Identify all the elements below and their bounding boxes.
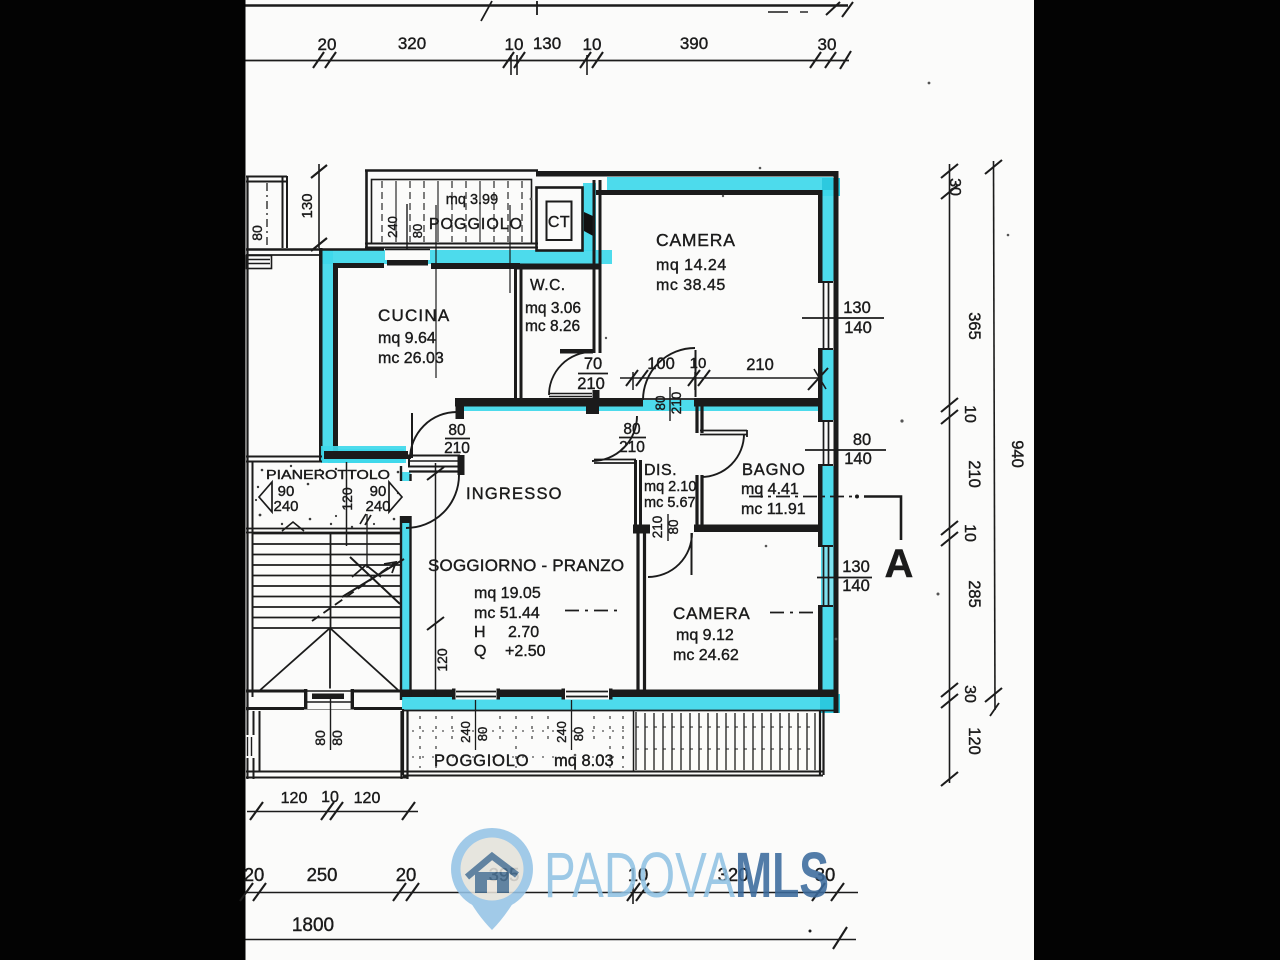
svg-text:DIS.: DIS. — [644, 462, 677, 479]
svg-text:120: 120 — [434, 648, 450, 672]
svg-text:mc 51.44: mc 51.44 — [474, 605, 540, 622]
svg-text:PADOVA: PADOVA — [544, 839, 735, 911]
svg-text:POGGIOLO: POGGIOLO — [434, 752, 529, 770]
svg-text:80: 80 — [410, 224, 425, 238]
svg-text:140: 140 — [844, 450, 872, 468]
svg-text:H: H — [474, 624, 486, 641]
svg-text:CUCINA: CUCINA — [378, 306, 450, 325]
svg-text:365: 365 — [965, 312, 983, 340]
svg-text:mc 11.91: mc 11.91 — [741, 501, 806, 518]
svg-text:130: 130 — [842, 558, 870, 576]
svg-text:CAMERA: CAMERA — [673, 604, 751, 623]
svg-text:mq 4.41: mq 4.41 — [741, 481, 799, 498]
svg-text:10: 10 — [690, 355, 707, 372]
svg-text:SOGGIORNO - PRANZO: SOGGIORNO - PRANZO — [428, 556, 624, 575]
svg-text:mq 2.10: mq 2.10 — [644, 479, 696, 495]
svg-text:80: 80 — [853, 431, 871, 449]
svg-text:CT: CT — [548, 214, 570, 231]
svg-text:MLS: MLS — [735, 839, 829, 911]
svg-text:100: 100 — [647, 355, 675, 373]
svg-text:210: 210 — [669, 392, 684, 415]
svg-text:20: 20 — [244, 864, 265, 885]
svg-text:mc 38.45: mc 38.45 — [656, 277, 726, 294]
svg-text:10: 10 — [961, 405, 978, 423]
svg-text:30: 30 — [818, 35, 837, 54]
svg-text:mq 3.99: mq 3.99 — [446, 192, 498, 208]
svg-text:80: 80 — [571, 727, 586, 741]
svg-text:140: 140 — [842, 577, 870, 595]
svg-text:20: 20 — [318, 35, 337, 54]
svg-text:10: 10 — [321, 789, 339, 806]
svg-text:A: A — [885, 542, 914, 586]
svg-text:30: 30 — [946, 178, 963, 196]
svg-text:mq 19.05: mq 19.05 — [474, 585, 541, 602]
svg-text:120: 120 — [281, 790, 308, 807]
svg-text:80: 80 — [623, 421, 641, 438]
svg-text:240: 240 — [365, 498, 390, 515]
svg-text:PIANEROTTOLO: PIANEROTTOLO — [266, 467, 390, 482]
svg-text:80: 80 — [666, 519, 681, 534]
svg-text:20: 20 — [396, 864, 417, 885]
svg-text:240: 240 — [385, 216, 400, 238]
svg-text:mq 3.06: mq 3.06 — [525, 300, 581, 317]
svg-text:130: 130 — [533, 34, 561, 53]
svg-text:940: 940 — [1008, 440, 1026, 468]
svg-text:BAGNO: BAGNO — [742, 461, 806, 479]
svg-text:10: 10 — [583, 35, 602, 54]
svg-text:320: 320 — [398, 34, 426, 53]
svg-text:INGRESSO: INGRESSO — [466, 485, 563, 503]
svg-text:80: 80 — [312, 730, 328, 746]
svg-text:CAMERA: CAMERA — [656, 230, 736, 250]
svg-text:250: 250 — [307, 864, 338, 885]
svg-text:mq 9.64: mq 9.64 — [378, 330, 436, 347]
svg-text:W.C.: W.C. — [530, 277, 566, 294]
svg-text:210: 210 — [746, 356, 774, 374]
svg-text:210: 210 — [650, 516, 665, 539]
svg-text:80: 80 — [448, 422, 466, 439]
svg-text:80: 80 — [329, 730, 345, 746]
svg-text:120: 120 — [354, 790, 381, 807]
svg-text:2.70: 2.70 — [508, 624, 539, 641]
svg-text:+2.50: +2.50 — [505, 643, 546, 660]
svg-text:210: 210 — [965, 460, 983, 488]
svg-text:mc 5.67: mc 5.67 — [644, 495, 696, 511]
svg-text:210: 210 — [444, 440, 470, 457]
svg-text:70: 70 — [584, 355, 602, 373]
svg-text:1800: 1800 — [292, 915, 334, 936]
svg-text:mc 26.03: mc 26.03 — [378, 350, 444, 367]
svg-text:240: 240 — [273, 498, 298, 515]
svg-text:mc 8.26: mc 8.26 — [525, 318, 580, 335]
svg-text:mq 8.03: mq 8.03 — [554, 752, 614, 770]
svg-text:240: 240 — [554, 721, 569, 743]
svg-text:POGGIOLO: POGGIOLO — [429, 216, 523, 233]
svg-text:210: 210 — [619, 439, 645, 456]
svg-text:10: 10 — [505, 35, 524, 54]
svg-text:10: 10 — [961, 524, 978, 542]
svg-text:30: 30 — [961, 685, 978, 703]
svg-text:120: 120 — [339, 487, 355, 511]
svg-text:130: 130 — [843, 299, 871, 317]
svg-text:120: 120 — [965, 727, 983, 755]
svg-text:240: 240 — [458, 721, 473, 743]
svg-text:Q: Q — [474, 643, 486, 660]
svg-text:285: 285 — [965, 580, 983, 608]
svg-text:mc 24.62: mc 24.62 — [673, 647, 739, 664]
svg-text:80: 80 — [475, 727, 490, 741]
svg-text:80: 80 — [249, 225, 265, 241]
svg-text:mq 14.24: mq 14.24 — [656, 257, 727, 274]
svg-text:210: 210 — [577, 375, 605, 393]
svg-text:80: 80 — [653, 395, 668, 410]
svg-text:mq 9.12: mq 9.12 — [676, 627, 734, 644]
svg-text:130: 130 — [299, 193, 316, 218]
svg-text:390: 390 — [680, 34, 708, 53]
svg-text:140: 140 — [844, 319, 872, 337]
